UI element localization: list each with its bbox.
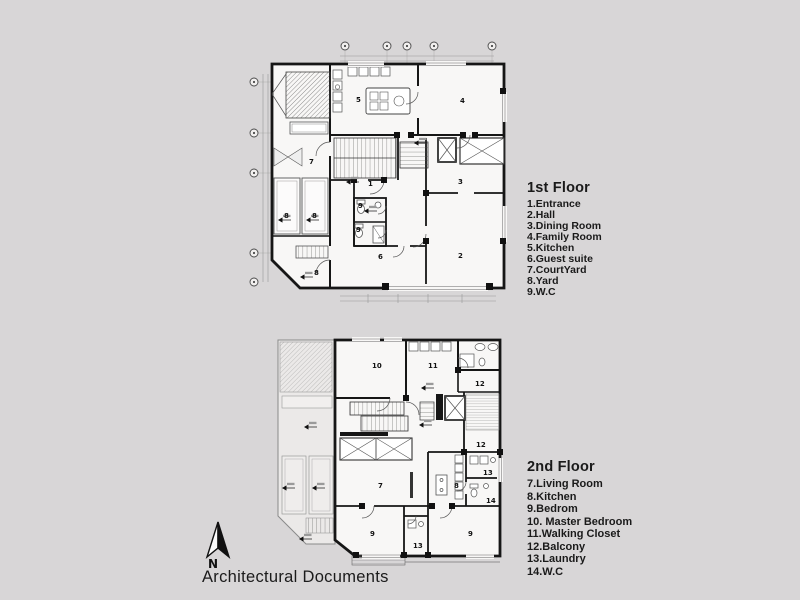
room-label-living: 7 (378, 482, 383, 490)
room-label-wc2: 14 (486, 497, 496, 505)
legend-item: 10. Master Bedroom (527, 516, 677, 529)
planter (274, 178, 300, 234)
room-label-balcony-b: 12 (476, 441, 486, 449)
legend-item: 11.Walking Closet (527, 528, 677, 541)
room-label-family: 4 (460, 97, 465, 105)
garden-steps (296, 246, 328, 258)
room-label-yard-c: 8 (314, 269, 319, 277)
balcony-railing (466, 394, 499, 430)
legend-second-floor: 2nd Floor 7.Living Room 8.Kitchen 9.Bedr… (527, 459, 677, 578)
room-label-entrance: 1 (368, 180, 373, 188)
room-label-closet: 11 (428, 362, 438, 370)
floor2-yard-below (278, 340, 335, 544)
legend-item: 12.Balcony (527, 541, 677, 554)
room-label-bedroom-a: 9 (370, 530, 375, 538)
elevator-icon (438, 138, 456, 162)
architectural-sheet: 5 4 7 1 3 9 9 8 8 8 6 2 (0, 0, 800, 600)
room-label-laundry-a: 13 (483, 469, 493, 477)
legend-first-floor-title: 1st Floor (527, 180, 677, 196)
room-label-wc-a: 9 (358, 202, 363, 210)
room-label-master: 10 (372, 362, 382, 370)
yard-hatch (286, 72, 330, 118)
north-arrow-icon: N (198, 520, 238, 570)
room-label-dining: 3 (458, 178, 463, 186)
room-label-bedroom-b: 9 (468, 530, 473, 538)
legend-item: 8.Kitchen (527, 491, 677, 504)
void-cross-icon (460, 138, 504, 164)
room-label-guest: 6 (378, 253, 383, 261)
room-label-hall: 2 (458, 252, 463, 260)
legend-item: 9.Bedrom (527, 503, 677, 516)
legend-item: 13.Laundry (527, 553, 677, 566)
second-floor-plan: 10 11 12 12 7 8 13 14 9 9 13 (266, 328, 514, 580)
room-label-courtyard: 7 (309, 158, 314, 166)
elevator-icon (436, 394, 465, 420)
legend-item: 14.W.C (527, 566, 677, 579)
first-floor-plan: 5 4 7 1 3 9 9 8 8 8 6 2 (248, 30, 510, 308)
legend-second-floor-title: 2nd Floor (527, 459, 677, 475)
room-label-wc-b: 9 (356, 226, 361, 234)
room-label-yard-a: 8 (284, 212, 289, 220)
room-label-kitchen2: 8 (454, 482, 459, 490)
planter (302, 178, 328, 234)
legend-item: 9.W.C (527, 287, 677, 298)
legend-item: 7.Living Room (527, 478, 677, 491)
room-label-kitchen: 5 (356, 96, 361, 104)
room-label-yard-b: 8 (312, 212, 317, 220)
sheet-title: Architectural Documents (202, 568, 389, 587)
room-label-balcony-a: 12 (475, 380, 485, 388)
legend-first-floor: 1st Floor 1.Entrance 2.Hall 3.Dining Roo… (527, 180, 677, 298)
room-label-laundry-b: 13 (413, 542, 423, 550)
void-cross-icon (340, 438, 412, 460)
